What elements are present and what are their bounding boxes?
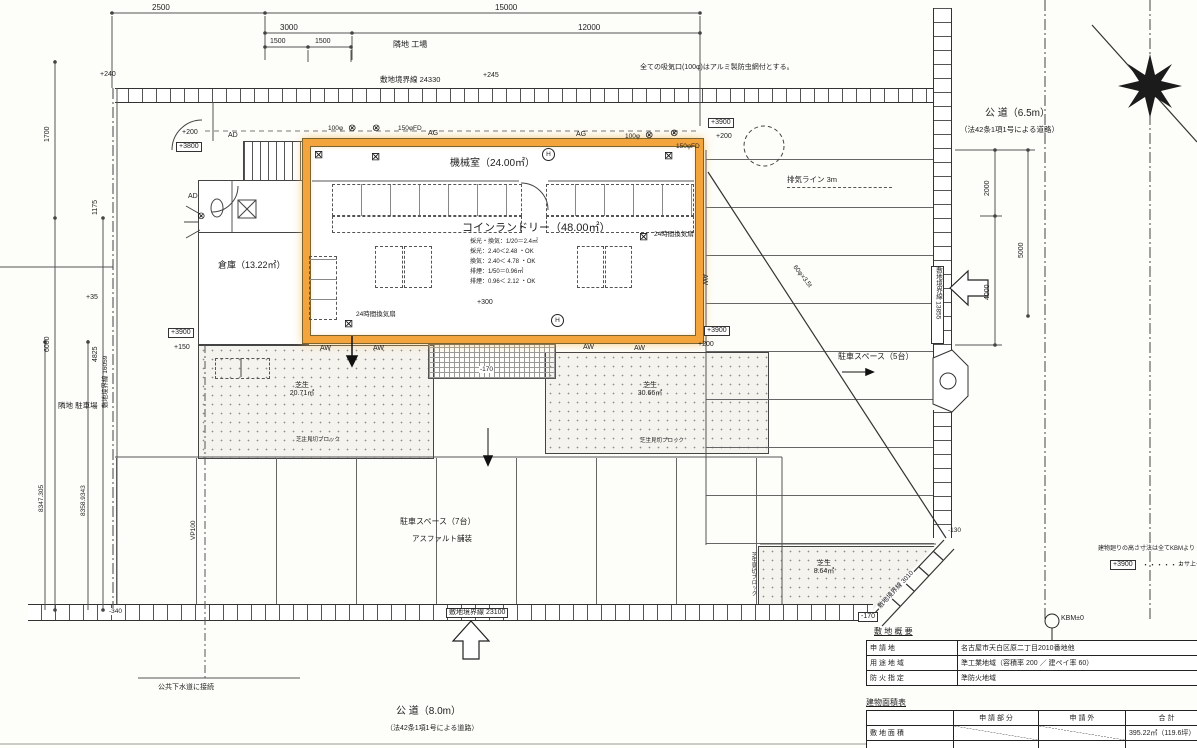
box-fan-icon: ⊠ (639, 232, 648, 243)
planter-box (215, 358, 270, 379)
row-cell (1038, 741, 1125, 748)
dim-3000: 3000 (280, 23, 298, 32)
header-cell: 合 計 (1125, 711, 1197, 725)
level-150: +150 (174, 344, 190, 352)
level-200: +200 (698, 341, 714, 349)
legend-suffix: カサ上ゲ (1178, 562, 1197, 569)
dim-4000: 4000 (984, 284, 992, 300)
legend-3900-box: +3900 (1110, 560, 1136, 570)
level-245: +245 (483, 72, 499, 80)
south-entrance-arrow (453, 621, 489, 659)
road-east-name: 公 道（6.5m） (985, 108, 1050, 120)
washer-row-left (332, 184, 522, 216)
aw-label: AW (583, 344, 594, 352)
calc-line: 採光：2.40＜2.48 ・OK (470, 249, 534, 256)
calc-line: 換気：2.40＜ 4.78 ・OK (470, 259, 535, 266)
calc-line: 排煙：1/50＝0.96㎡ (470, 269, 523, 276)
machine-room-label: 機械室（24.00㎡） (450, 158, 535, 170)
level-35: +35 (86, 294, 98, 302)
hydrant-symbol: H (542, 148, 555, 161)
road-south-name: 公 道（8.0m） (396, 706, 461, 718)
table-row: 申 請 地 名古屋市天白区原二丁目2010番地他 (867, 641, 1197, 655)
dim-2500: 2500 (152, 3, 170, 12)
dim-8358: 8358.9343 (80, 485, 87, 516)
level-3800-box: +3800 (176, 142, 202, 152)
row-label (867, 741, 953, 748)
level-m170-porch: -170 (479, 366, 494, 373)
laundry-label: コインランドリー（48.00㎡） (462, 222, 611, 235)
lawn-se-label: 芝生8.64㎡ (800, 560, 848, 576)
table-row: 敷 地 面 積 395.22㎡（119.6坪） (867, 725, 1197, 740)
dim-1500: 1500 (270, 38, 286, 46)
calc-line: 排煙：0.96＜ 2.12 ・OK (470, 279, 535, 286)
pipe-vp100: VP100 (190, 520, 197, 540)
dim-8347: 8347.305 (38, 485, 45, 512)
boundary-east-label: 敷地境界線 13855 (931, 266, 944, 344)
level-m170-box: -170 (858, 612, 878, 622)
dim-15000: 15000 (495, 3, 517, 12)
boundary-south-label: 敷地境界線 23100 (446, 608, 508, 618)
dim-2000: 2000 (984, 180, 992, 196)
row-value: 準工業地域（容積率 200 ／ 建ペイ率 60） (957, 656, 1197, 670)
ag-label: AG (576, 131, 586, 139)
area-table-title: 建物面積表 (866, 698, 906, 707)
slashed-cell (953, 726, 1038, 740)
vent-100-label: 100φ (328, 125, 343, 132)
aw-label: AW (320, 345, 331, 353)
exhaust-line-label: 排気ライン 3m (787, 176, 892, 188)
slashed-cell (1038, 726, 1125, 740)
compass-rose (1118, 54, 1182, 118)
road-east-law: （法42条1項1号による道路） (960, 126, 1059, 135)
sewer-note: 公共下水道に接続 (158, 684, 214, 692)
dim-5000: 5000 (1018, 242, 1026, 258)
level-200: +200 (182, 129, 198, 137)
height-note: 建物廻りの高さ寸法は全てKBMより (1098, 546, 1195, 553)
vent-fan-icon: ⊗ (670, 129, 678, 139)
boundary-centerlines (113, 0, 1150, 622)
row-label: 用 途 地 域 (867, 656, 957, 670)
table-row: 防 火 指 定 準防火地域 (867, 670, 1197, 685)
box-fan-icon: ⊠ (371, 152, 380, 163)
site-plan-sheet: ⊗ ⊗ ⊗ ⊗ ⊗ ⊠ ⊠ ⊠ ⊠ ⊠ H H 2500 15000 3000 … (0, 0, 1197, 748)
vent-100-label: 100φ (625, 133, 640, 140)
box-fan-icon: ⊠ (314, 150, 323, 161)
lawn-edge-label: 芝生見切ブロック (640, 438, 684, 444)
level-300: +300 (477, 299, 493, 307)
intake-note: 全ての吸気口(100φ)はアルミ製防虫網付とする。 (640, 64, 794, 72)
vent-150-label: 150φFD (398, 125, 422, 132)
neighbor-west-label: 隣地 駐車場 (58, 402, 98, 411)
folding-table (404, 246, 432, 288)
vent24-label: 24時間換気扇 (356, 311, 396, 318)
building-area-table: 申 請 部 分 申 請 外 合 計 敷 地 面 積 395.22㎡（119.6坪… (866, 710, 1197, 748)
parking-south-sub: アスファルト舗装 (412, 535, 472, 544)
ad-label: AD (228, 132, 238, 140)
storage-label: 倉庫（13.22㎡） (218, 260, 286, 270)
level-200: +200 (716, 133, 732, 141)
washer-row-right (546, 184, 694, 216)
kbm-label: KBM±0 (1061, 615, 1084, 623)
kbm-marker (1045, 614, 1059, 643)
entrance-door-arc (521, 183, 548, 210)
folding-table (577, 246, 604, 288)
lawn-edge-label: 芝生見切ブロック (296, 437, 340, 443)
box-fan-icon: ⊠ (344, 319, 353, 330)
level-3900-box: +3900 (708, 118, 734, 128)
ag-label: AG (428, 130, 438, 138)
level-m340: -340 (108, 608, 123, 615)
row-cell (1125, 741, 1197, 748)
toilet-fixture (211, 199, 223, 217)
vent-fan-icon: ⊗ (372, 124, 380, 134)
row-label: 申 請 地 (867, 641, 957, 655)
dim-1700: 1700 (44, 126, 52, 142)
site-table-title: 敷 地 概 要 (874, 627, 913, 636)
boundary-north-label: 敷地境界線 24330 (380, 76, 440, 85)
dim-12000: 12000 (578, 23, 600, 32)
site-overview-table: 申 請 地 名古屋市天白区原二丁目2010番地他 用 途 地 域 準工業地域（容… (866, 640, 1197, 686)
vent-fan-icon: ⊗ (197, 212, 205, 222)
equipment-west-wall (309, 256, 337, 320)
header-cell (867, 711, 953, 725)
row-value: 準防火地域 (957, 671, 1197, 685)
road-south-law: （法42条1項1号による道路） (386, 725, 478, 733)
row-label: 敷 地 面 積 (867, 726, 953, 740)
folding-table (605, 246, 632, 288)
east-entrance-arrow (950, 271, 988, 305)
level-3900-box: +3900 (704, 326, 730, 336)
aw-label: AW (634, 345, 645, 353)
header-cell: 申 請 部 分 (953, 711, 1038, 725)
hydrant-symbol: H (551, 314, 564, 327)
vent-150-label: 150φFD (676, 143, 700, 150)
box-fan-icon: ⊠ (664, 151, 673, 162)
level-m130: -130 (948, 527, 961, 534)
parking-south-label: 駐車スペース（7台） (400, 517, 476, 526)
level-3900-box: +3900 (168, 328, 194, 338)
vent-fan-icon: ⊗ (348, 124, 356, 134)
lawn-left-label: 芝生20.71㎡ (278, 382, 326, 398)
row-label: 防 火 指 定 (867, 671, 957, 685)
calc-line: 採光・換気：1/20＝2.4㎡ (470, 239, 538, 246)
row-value: 名古屋市天白区原二丁目2010番地他 (957, 641, 1197, 655)
ad-label: AD (188, 193, 198, 201)
aw-label: AW (373, 345, 384, 353)
header-cell: 申 請 外 (1038, 711, 1125, 725)
dim-6000: 6000 (44, 336, 52, 352)
boundary-west-label: 敷地境界線 16059 (102, 356, 109, 408)
row-total: 395.22㎡（119.6坪） (1125, 726, 1197, 740)
dim-4825: 4825 (92, 346, 100, 362)
neighbor-north-label: 隣地 工場 (393, 40, 427, 49)
level-240: +240 (100, 71, 116, 79)
table-row-partial (867, 740, 1197, 748)
folding-table (375, 246, 403, 288)
gate-post (933, 350, 968, 412)
table-row: 用 途 地 域 準工業地域（容積率 200 ／ 建ペイ率 60） (867, 655, 1197, 670)
parking-east-label: 駐車スペース（5台） (838, 352, 914, 361)
lawn-right-label: 芝生30.66㎡ (626, 382, 674, 398)
dim-1500: 1500 (315, 38, 331, 46)
planting-circle (744, 126, 784, 166)
vent-fan-icon: ⊗ (645, 131, 653, 141)
vent24-label: 24時間換気扇 (654, 231, 694, 238)
table-header-row: 申 請 部 分 申 請 外 合 計 (867, 711, 1197, 725)
dim-1175: 1175 (92, 200, 100, 215)
aw-label: AW (700, 274, 708, 285)
row-cell (953, 741, 1038, 748)
lawn-edge-label: 芝生見切ブロック (750, 552, 756, 596)
